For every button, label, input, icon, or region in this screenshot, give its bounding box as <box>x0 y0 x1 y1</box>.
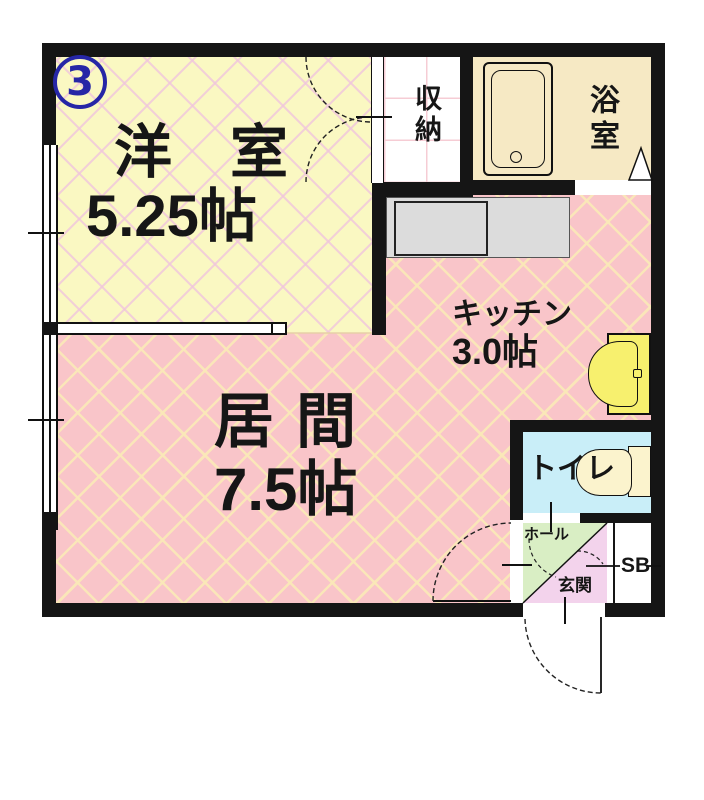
unit-number-badge: 3 <box>53 55 107 109</box>
toilet-door-opening <box>523 513 580 523</box>
wall-left-upper <box>42 43 56 145</box>
storage-label: 収納 <box>412 84 439 146</box>
wall-western-kitchen <box>372 182 386 335</box>
entrance-door-arc <box>525 619 601 693</box>
wall-toilet-left <box>510 420 523 523</box>
western-room-label: 洋室 <box>114 124 346 182</box>
wall-right <box>651 43 665 617</box>
bathtub-drain <box>510 151 522 163</box>
window-western-room <box>42 145 58 322</box>
kitchen-sink <box>394 201 488 256</box>
bathroom-door-opening <box>575 180 651 195</box>
sliding-door-pull <box>271 324 273 333</box>
wall-toilet-top <box>510 420 651 432</box>
living-hall-door-opening <box>510 520 523 603</box>
wall-bathroom-bottom <box>460 180 575 195</box>
wall-top <box>42 43 665 57</box>
wall-left-lower <box>42 528 56 617</box>
toilet-label: トイレ <box>528 455 615 484</box>
western-room-size: 5.25帖 <box>86 188 257 246</box>
wall-storage-right <box>460 43 473 197</box>
kitchen-size: 3.0帖 <box>452 334 538 370</box>
hall-label: ホール <box>524 527 569 542</box>
window-glass-line <box>49 145 51 322</box>
entrance-label: 玄関 <box>558 577 592 594</box>
window-living-room <box>42 335 58 512</box>
washbasin-tap <box>633 369 642 378</box>
kitchen-label: キッチン <box>452 300 572 330</box>
entrance-door-opening <box>523 603 605 617</box>
bathroom-label: 浴室 <box>586 84 616 156</box>
sliding-door-partition <box>56 322 287 335</box>
window-glass-line <box>49 335 51 512</box>
storage-door-panels <box>371 57 384 183</box>
living-room-size: 7.5帖 <box>214 460 357 520</box>
unit-number: 3 <box>66 59 94 105</box>
shoebox-label: SB <box>621 555 650 576</box>
living-room-label: 居間 <box>214 392 378 452</box>
shoebox-divider <box>613 523 615 603</box>
floor-plan: 3 洋室 5.25帖 居間 7.5帖 キッチン 3.0帖 収納 浴室 トイレ ホ… <box>0 0 704 800</box>
